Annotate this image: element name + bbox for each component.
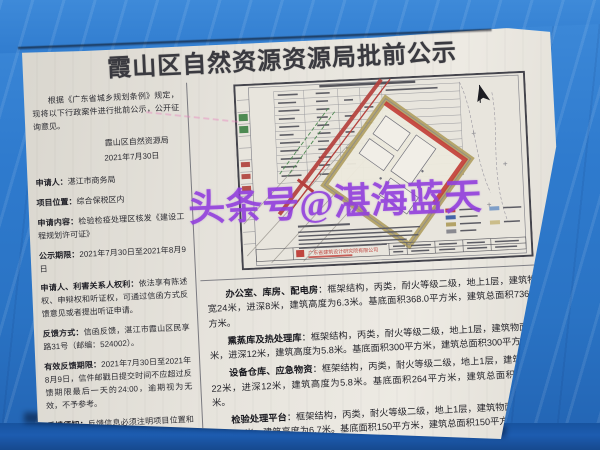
photo-of-public-notice: 霞山区自然资源资源局批前公示 根据《广东省城乡规划条例》规定，现将以下行政案件进… [0, 0, 600, 450]
field-publicity-period: 公示期限：2021年7月30日至2021年8月9日 [39, 244, 187, 277]
notice-content: 霞山区自然资源资源局批前公示 根据《广东省城乡规划条例》规定，现将以下行政案件进… [21, 16, 559, 444]
notice-body: 根据《广东省城乡规划条例》规定，现将以下行政案件进行批前公示，公开征询意见。 霞… [23, 64, 555, 444]
field-location: 项目位置：综合保税区内 [36, 191, 183, 211]
notice-paper: 霞山区自然资源资源局批前公示 根据《广东省城乡规划条例》规定，现将以下行政案件进… [18, 20, 570, 442]
design-institute-logo [296, 250, 304, 257]
field-feedback-method: 反馈方式：信函反馈，湛江市霞山区民享路31号（邮编：524002）。 [42, 322, 190, 355]
field-application-content: 申请内容：检验检疫处理区核发《建设工程规划许可证》 [37, 211, 185, 244]
notice-left-column: 根据《广东省城乡规划条例》规定，现将以下行政案件进行批前公示，公开征询意见。 霞… [23, 81, 203, 444]
notice-right-column: 广东省建筑设计研究院有限公司 办公室、库房、配电房：框架结构，丙类，耐火 [187, 64, 555, 436]
building-descriptions: 办公室、库房、配电房：框架结构，丙类，耐火等级二级，地上1层，建筑物面宽24米，… [207, 272, 553, 446]
field-rights: 申请人、利害关系人权利：依法享有陈述权、申辩权和听证权，可通过信函方式反馈意见或… [40, 276, 189, 322]
field-applicant: 申请人：湛江市商务局 [35, 171, 182, 191]
field-feedback-deadline: 有效反馈期限：2021年7月30日至2021年8月9日，信件邮戳日提交时间不应超… [44, 355, 193, 414]
